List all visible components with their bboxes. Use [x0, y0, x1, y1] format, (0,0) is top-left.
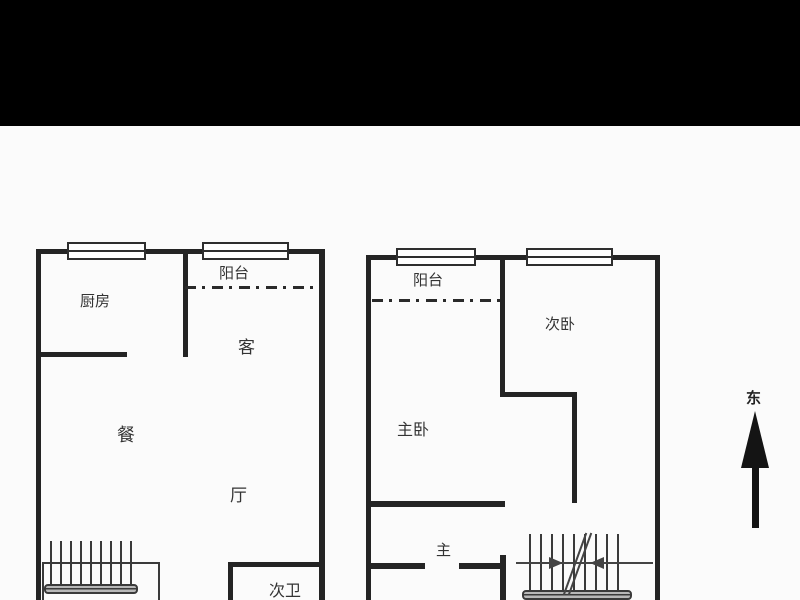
right-unit-bedroom-divider-wall-upper — [500, 258, 505, 396]
right-unit-window-2 — [526, 248, 613, 266]
left-unit-window-2 — [202, 242, 289, 260]
left-unit-stair-landing-bar — [44, 584, 138, 594]
left-unit-wall-left — [36, 249, 41, 600]
left-unit-kitchen-label: 厨房 — [80, 294, 110, 309]
left-unit-kitchen-bottom-wall — [36, 352, 127, 357]
left-unit-dining-label: 餐 — [117, 427, 135, 445]
right-unit-stair-landing-bar — [522, 590, 632, 600]
compass-east-label: 东 — [746, 391, 761, 406]
left-unit-stair-treads — [50, 541, 135, 588]
right-unit-door-wall-right — [459, 563, 505, 569]
right-unit-door-wall-vertical — [500, 555, 506, 600]
left-unit-window-1 — [67, 242, 146, 260]
right-unit-balcony-dashline — [372, 299, 500, 302]
right-unit-bedroom-divider-wall-horizontal — [500, 392, 577, 397]
right-unit-wall-right — [655, 255, 660, 600]
left-unit-balcony-dashline — [185, 286, 319, 289]
stair-arrowhead-right-icon — [549, 557, 563, 569]
left-unit-wall-right — [319, 249, 325, 600]
left-unit-kitchen-divider-wall — [183, 254, 188, 357]
right-unit-balcony-label: 阳台 — [413, 273, 443, 288]
right-unit-master-label: 主 — [436, 543, 451, 558]
right-unit-master-bedroom-label: 主卧 — [397, 422, 429, 438]
left-unit-bathroom-wall-vertical — [228, 562, 233, 600]
compass-arrow-shaft — [752, 462, 759, 528]
stair-direction-arrow-line — [516, 562, 653, 564]
stair-arrowhead-left-icon — [590, 557, 604, 569]
compass-north-arrow-head-icon — [741, 411, 769, 468]
left-unit-second-bathroom-label: 次卫 — [269, 583, 301, 599]
letterbox-top-bar — [0, 0, 800, 126]
left-unit-balcony-label: 阳台 — [219, 266, 249, 281]
right-unit-master-bottom-wall — [366, 501, 505, 507]
right-unit-door-wall-left — [366, 563, 425, 569]
left-unit-hall-label: 厅 — [230, 488, 247, 505]
left-unit-living-label: 客 — [238, 340, 255, 357]
right-unit-wall-left — [366, 255, 371, 600]
floor-plan-screen: 厨房 阳台 客 餐 厅 次卫 阳台 次卧 — [0, 0, 800, 600]
right-unit-bedroom-divider-wall-lower — [572, 392, 577, 503]
right-unit-window-1 — [396, 248, 476, 266]
right-unit-second-bedroom-label: 次卧 — [545, 317, 575, 332]
left-unit-bathroom-wall-top — [228, 562, 324, 567]
